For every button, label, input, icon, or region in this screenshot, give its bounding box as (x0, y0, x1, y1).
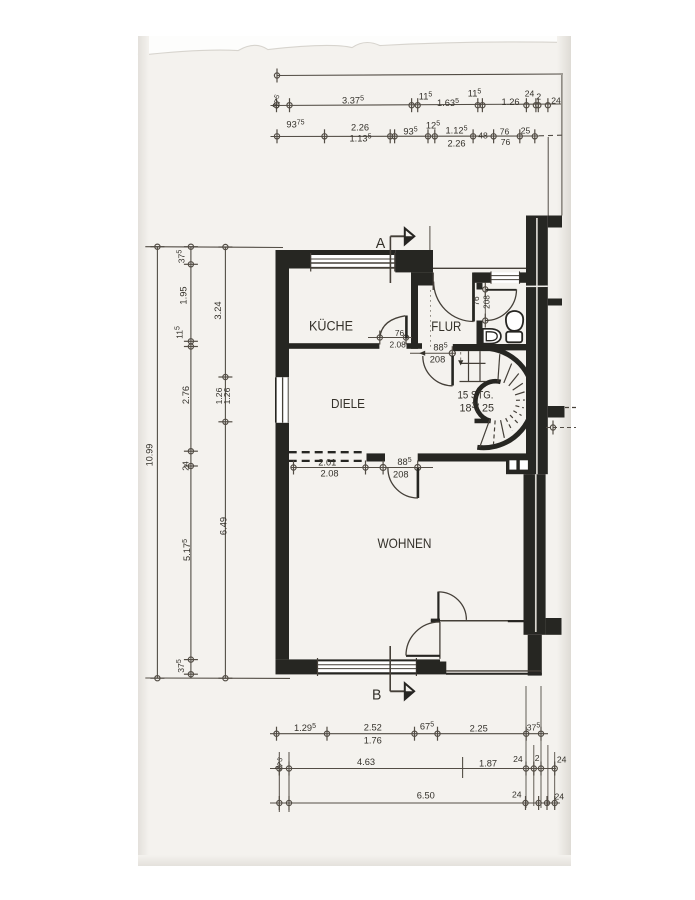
svg-text:2: 2 (536, 92, 541, 102)
svg-text:208: 208 (393, 470, 409, 480)
svg-text:1.95: 1.95 (179, 286, 189, 304)
svg-text:24: 24 (525, 89, 535, 99)
svg-text:24: 24 (512, 790, 522, 800)
svg-text:25: 25 (521, 126, 531, 136)
svg-text:2.52: 2.52 (364, 723, 382, 733)
svg-text:1.76: 1.76 (364, 736, 382, 746)
svg-text:1.26: 1.26 (501, 97, 519, 107)
svg-text:208: 208 (483, 295, 492, 309)
svg-text:3.24: 3.24 (213, 301, 223, 319)
svg-text:183/ 25: 183/ 25 (460, 401, 494, 415)
svg-text:24: 24 (555, 792, 565, 802)
svg-text:10.99: 10.99 (145, 444, 155, 467)
svg-text:2.26: 2.26 (351, 123, 369, 133)
svg-text:1.87: 1.87 (479, 759, 497, 769)
svg-text:2.08: 2.08 (320, 468, 338, 478)
svg-text:76: 76 (500, 127, 510, 137)
svg-text:2.25: 2.25 (470, 724, 488, 734)
svg-text:1.26: 1.26 (222, 387, 232, 404)
svg-text:24: 24 (181, 461, 191, 471)
svg-text:208: 208 (430, 355, 446, 365)
svg-text:76: 76 (472, 296, 481, 306)
svg-text:6.50: 6.50 (417, 791, 435, 801)
svg-text:76: 76 (501, 137, 511, 147)
svg-text:B: B (372, 686, 381, 703)
svg-text:A: A (376, 235, 386, 252)
svg-text:2.01: 2.01 (318, 457, 336, 467)
svg-text:24: 24 (557, 755, 567, 765)
svg-text:WOHNEN: WOHNEN (378, 536, 432, 551)
svg-text:76: 76 (395, 328, 405, 338)
svg-text:2.26: 2.26 (447, 139, 465, 149)
svg-text:24: 24 (513, 754, 523, 764)
svg-text:DIELE: DIELE (331, 396, 365, 411)
svg-text:24: 24 (551, 96, 561, 106)
svg-text:6.49: 6.49 (219, 517, 229, 535)
svg-text:48: 48 (478, 131, 488, 141)
svg-text:FLUR: FLUR (431, 319, 461, 334)
svg-text:2.76: 2.76 (181, 386, 191, 404)
svg-text:2.08: 2.08 (390, 339, 407, 349)
svg-text:4.63: 4.63 (357, 757, 375, 767)
svg-text:KÜCHE: KÜCHE (309, 317, 353, 335)
svg-text:2: 2 (535, 753, 540, 763)
svg-text:15 STG.: 15 STG. (458, 389, 494, 401)
